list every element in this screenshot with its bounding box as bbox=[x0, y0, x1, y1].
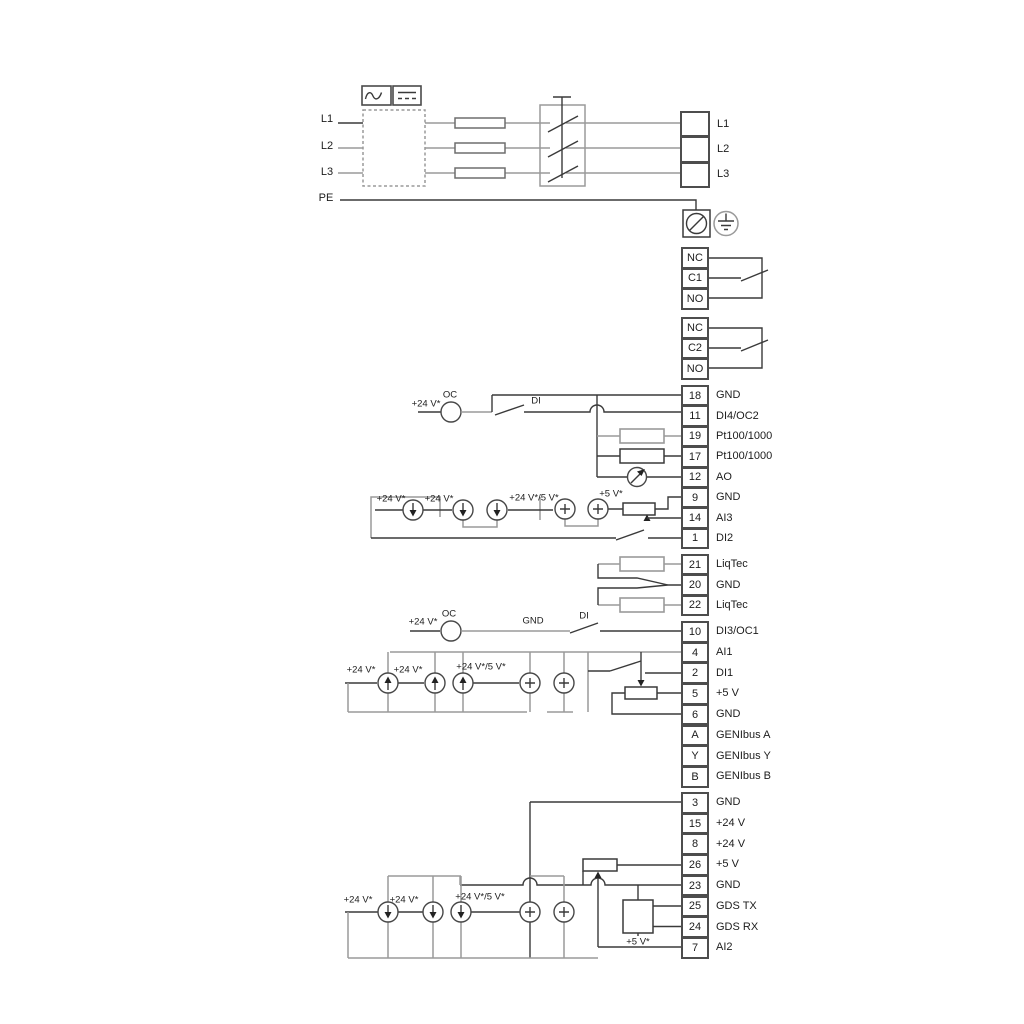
mains-label-l1: L1 bbox=[321, 113, 333, 125]
ai2-gds-circuit bbox=[345, 802, 681, 958]
wiring-diagram: L1L2L3 NCC1NO NCC2NO 18GND11DI4/OC219Pt1… bbox=[0, 0, 1024, 1024]
liqtec-resistor-icon bbox=[620, 598, 664, 612]
voltage-label: +24 V* bbox=[390, 895, 419, 906]
voltage-label: +24 V* bbox=[394, 665, 423, 676]
oc-circle-icon bbox=[441, 402, 461, 422]
ac-icon bbox=[362, 86, 391, 105]
oc-label: OC bbox=[443, 390, 457, 401]
filter-box bbox=[363, 110, 425, 186]
di1-switch-icon bbox=[588, 661, 681, 673]
potentiometer-icon bbox=[623, 503, 655, 515]
voltage-label: +24 V*/5 V* bbox=[509, 493, 558, 504]
current-sink-icon bbox=[453, 500, 473, 520]
gds-sensor-box bbox=[623, 900, 653, 933]
liqtec-resistor-icon bbox=[620, 557, 664, 571]
pt100-resistor-icon bbox=[620, 449, 664, 463]
current-sink-icon bbox=[423, 902, 443, 922]
voltage-label: +24 V* bbox=[347, 665, 376, 676]
voltage-source-icon bbox=[520, 673, 540, 693]
pt100-resistor-icon bbox=[620, 429, 664, 443]
di-label: DI bbox=[531, 396, 541, 407]
oc-label: OC bbox=[442, 609, 456, 620]
relay2-contact-icon bbox=[709, 328, 768, 368]
di3-oc1-circuit bbox=[410, 621, 681, 641]
voltage-label: +24 V*/5 V* bbox=[456, 662, 505, 673]
wiring-svg bbox=[0, 0, 1024, 1024]
earth-ground-icon bbox=[714, 212, 738, 236]
current-sink-icon bbox=[403, 500, 423, 520]
pe-wire bbox=[340, 200, 696, 210]
relay1-contact-icon bbox=[709, 258, 768, 298]
dc-icon bbox=[393, 86, 421, 105]
voltage-source-icon bbox=[554, 673, 574, 693]
ao-meter-icon bbox=[628, 468, 647, 487]
fuse-icons bbox=[455, 118, 505, 178]
mains-label-l3: L3 bbox=[321, 166, 333, 178]
mains-section bbox=[338, 86, 738, 237]
oc-circle-icon bbox=[441, 621, 461, 641]
voltage-label: +24 V* bbox=[425, 494, 454, 505]
voltage-source-icon bbox=[520, 902, 540, 922]
liqtec-circuit bbox=[598, 557, 681, 612]
potentiometer-icon bbox=[625, 687, 657, 699]
gnd-label: GND bbox=[522, 616, 543, 627]
pe-terminal-icon bbox=[683, 210, 710, 237]
current-source-icon bbox=[425, 673, 445, 693]
di-label: DI bbox=[579, 611, 589, 622]
voltage-label: +24 V* bbox=[412, 399, 441, 410]
voltage-label: +24 V* bbox=[377, 494, 406, 505]
potentiometer-icon bbox=[583, 859, 617, 871]
voltage-label: +24 V* bbox=[344, 895, 373, 906]
di3-switch-icon bbox=[570, 623, 598, 633]
voltage-source-icon bbox=[588, 499, 608, 519]
current-sink-icon bbox=[451, 902, 471, 922]
di2-switch-icon bbox=[616, 530, 644, 540]
voltage-label: +5 V* bbox=[626, 937, 650, 948]
mains-label-l2: L2 bbox=[321, 140, 333, 152]
ai1-di1-circuit bbox=[345, 652, 681, 714]
di4-pt100-ao-circuit bbox=[418, 395, 681, 487]
di-switch-icon bbox=[495, 405, 524, 415]
current-source-icon bbox=[453, 673, 473, 693]
current-source-icon bbox=[378, 673, 398, 693]
current-sink-icon bbox=[487, 500, 507, 520]
voltage-label: +24 V*/5 V* bbox=[455, 892, 504, 903]
mains-label-pe: PE bbox=[319, 192, 334, 204]
voltage-source-icon bbox=[554, 902, 574, 922]
voltage-label: +5 V* bbox=[599, 489, 623, 500]
voltage-label: +24 V* bbox=[409, 617, 438, 628]
